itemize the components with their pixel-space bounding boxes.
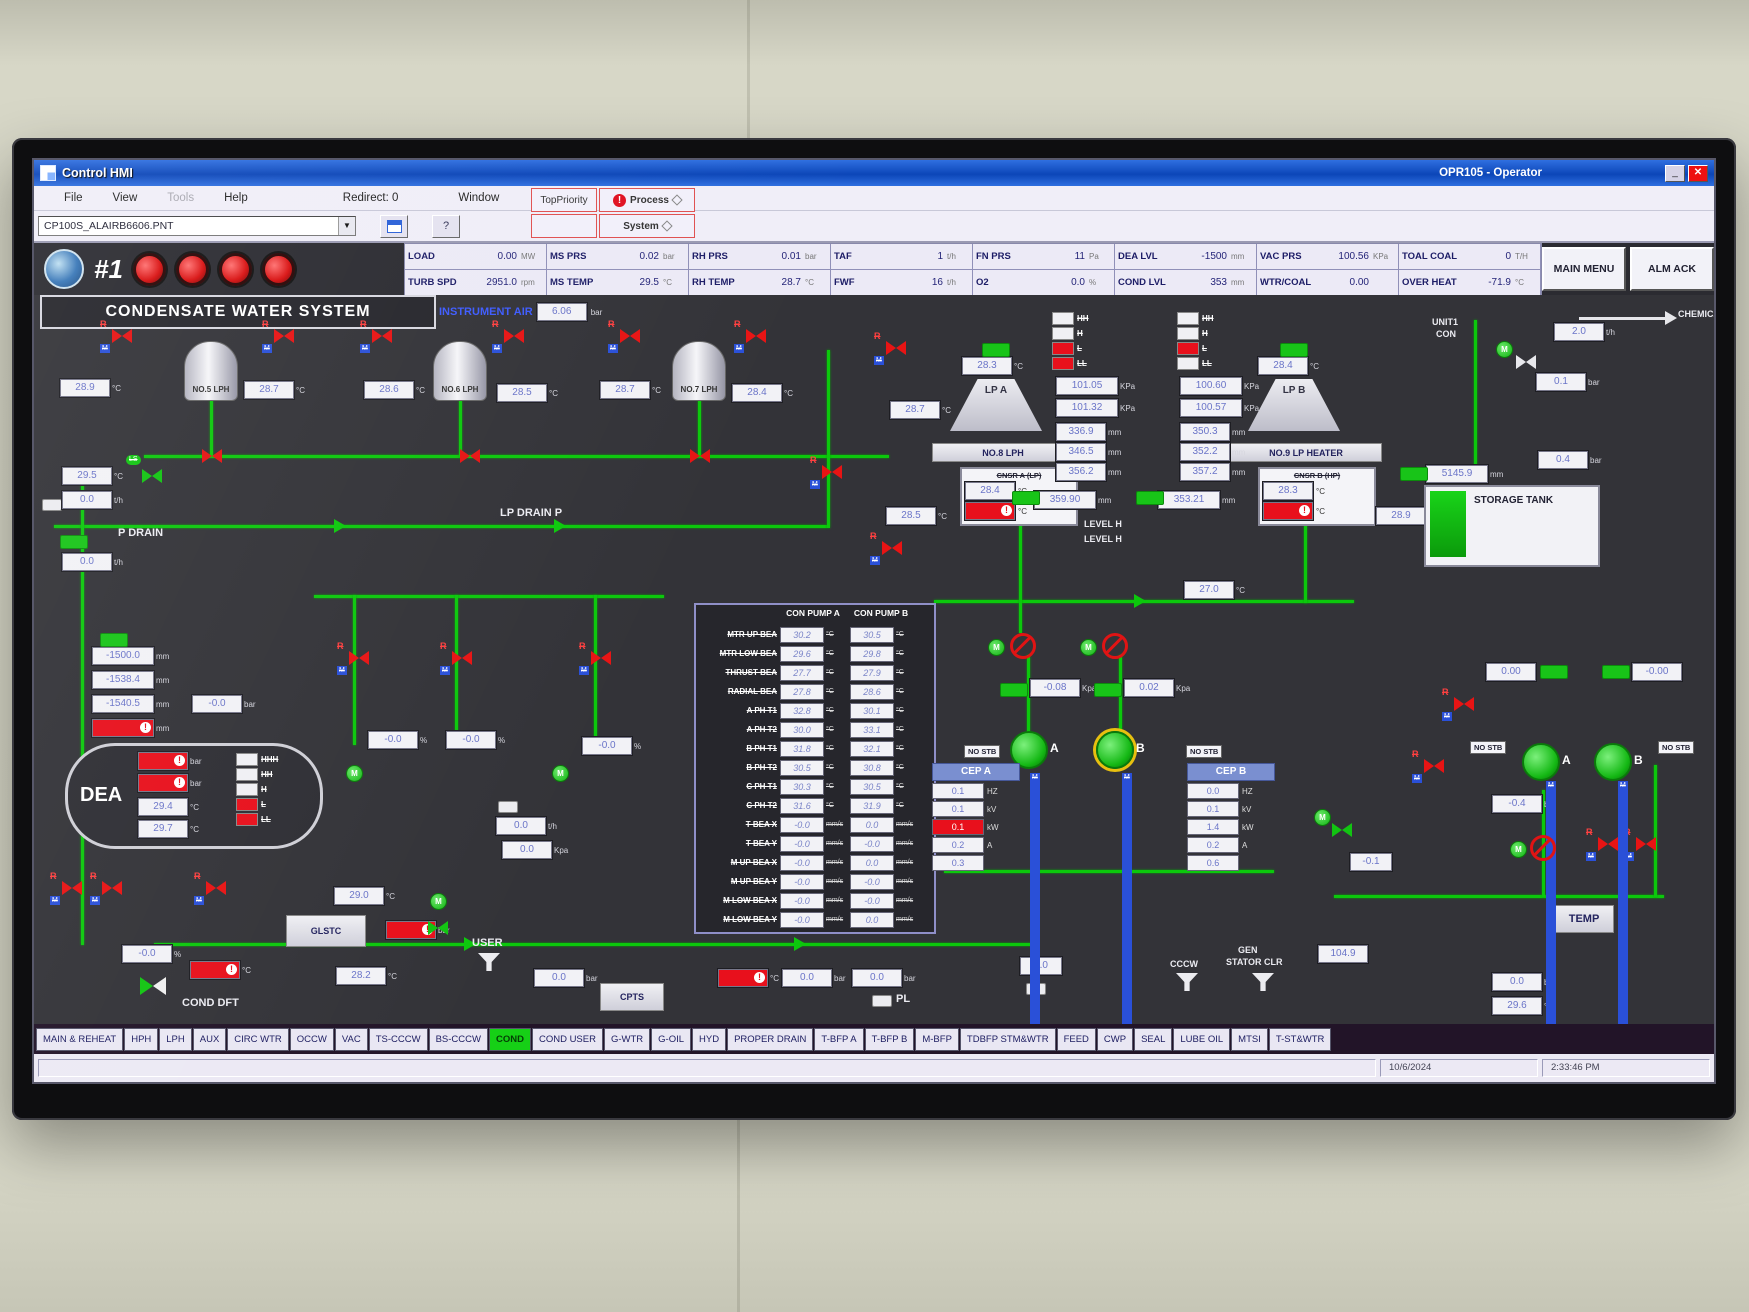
value-box: 336.9mm	[1056, 423, 1121, 441]
screen-tab[interactable]: T-BFP B	[865, 1028, 915, 1051]
cep-b-title[interactable]: CEP B	[1187, 763, 1275, 781]
kpi-cell: TURB SPD2951.0rpm	[405, 270, 547, 296]
level-box-icon	[1177, 342, 1199, 355]
table-row: RADIAL BEA 27.8°C 28.6°C	[699, 682, 931, 701]
valve-red[interactable]	[262, 323, 294, 349]
value-box: 0.00	[1486, 663, 1536, 681]
unit-block: #1	[34, 243, 404, 295]
motor-icon[interactable]	[1510, 841, 1527, 858]
motor-icon[interactable]	[552, 765, 569, 782]
con-label: CON	[1436, 329, 1456, 339]
table-row: T BEA Y -0.0mm/s -0.0mm/s	[699, 834, 931, 853]
motor-icon[interactable]	[1314, 809, 1331, 826]
cep-row: 0.1HZ	[932, 783, 1020, 799]
valve-red[interactable]	[337, 645, 369, 671]
valve-icon[interactable]	[690, 449, 710, 463]
screen-tab[interactable]: MAIN & REHEAT	[36, 1028, 123, 1051]
valve-red[interactable]	[1442, 691, 1474, 717]
screen-tab[interactable]: BS-CCCW	[429, 1028, 488, 1051]
motor-tag-icon	[1618, 781, 1628, 1024]
value-box: -0.00	[1632, 663, 1682, 681]
operator-label: OPR105 - Operator	[1439, 167, 1542, 179]
storage-tank: STORAGE TANK	[1424, 485, 1600, 567]
value-box: 100.60KPa	[1180, 377, 1259, 395]
screen-tab[interactable]: MTSI	[1231, 1028, 1268, 1051]
lp-turbine-b: LP B	[1248, 379, 1340, 431]
diamond-icon	[661, 220, 672, 231]
value-box: 28.3°C	[962, 357, 1023, 375]
minimize-button[interactable]: _	[1665, 165, 1685, 182]
top-priority-button[interactable]: TopPriority	[531, 188, 597, 212]
value-box: -1538.4mm	[92, 671, 169, 689]
lph-heater-7[interactable]: NO.7 LPH	[672, 341, 726, 401]
table-row: B PH T1 31.8°C 32.1°C	[699, 739, 931, 758]
cnsr-b-panel: CNSR B (HP) 28.3°C °C	[1258, 467, 1376, 526]
lp-drain-label: LP DRAIN P	[500, 507, 562, 519]
kpi-cell: WTR/COAL0.00	[1257, 270, 1399, 296]
value-box: 2.0t/h	[1554, 323, 1615, 341]
level-box-icon	[1177, 357, 1199, 370]
glstc-plate[interactable]: GLSTC	[286, 915, 366, 947]
value-box: 28.7°C	[890, 401, 951, 419]
motor-icon[interactable]	[346, 765, 363, 782]
valve-green-white-icon[interactable]	[140, 977, 166, 995]
meter-icon	[42, 499, 62, 511]
kpi-cell: MS PRS0.02bar	[547, 244, 689, 270]
value-box: 0.0t/h	[62, 491, 123, 509]
valve-red[interactable]	[50, 875, 82, 901]
screen-tab[interactable]: CWP	[1097, 1028, 1133, 1051]
auto-tag-icon	[1094, 683, 1122, 697]
screen-tab[interactable]: COND	[489, 1028, 531, 1051]
pipe-segment	[1304, 523, 1307, 603]
menu-item[interactable]: File	[64, 192, 83, 204]
system-button[interactable]: System	[599, 214, 695, 238]
value-box: -0.0bar	[192, 695, 256, 713]
valve-red[interactable]	[100, 323, 132, 349]
pipe-segment	[459, 395, 462, 457]
level-box-icon	[236, 753, 258, 766]
valve-red[interactable]	[608, 323, 640, 349]
alarm-lamp[interactable]	[262, 253, 295, 286]
file-combobox[interactable]: CP100S_ALAIRB6606.PNT	[38, 216, 356, 236]
deaerator-vessel[interactable]: DEA bar bar 29.4°C 29.7°C HHHHHHLLL	[65, 743, 323, 849]
value-box: 28.6°C	[364, 381, 425, 399]
header-buttons: MAIN MENU ALM ACK	[1542, 243, 1714, 295]
motor-icon[interactable]	[1080, 639, 1097, 656]
no9-lph-plate: NO.9 LP HEATER	[1230, 443, 1382, 462]
value-box: 104.9	[1318, 945, 1368, 963]
motor-tag-icon	[1122, 773, 1132, 1024]
value-box: 350.3mm	[1180, 423, 1245, 441]
auto-tag-icon	[1280, 343, 1308, 357]
kpi-cell: MS TEMP29.5°C	[547, 270, 689, 296]
process-label: Process	[630, 195, 669, 206]
main-menu-button[interactable]: MAIN MENU	[1542, 247, 1626, 291]
cep-row: 0.0HZ	[1187, 783, 1275, 799]
valve-green-icon[interactable]	[1332, 823, 1352, 837]
no-stb-tag: NO STB	[964, 745, 1000, 758]
auto-tag-icon	[1400, 467, 1428, 481]
pipe-segment	[827, 350, 830, 528]
value-box: 0.0	[1020, 957, 1062, 975]
mimic-diagram: CONDENSATE WATER SYSTEM INSTRUMENT AIR 6…	[34, 295, 1714, 1024]
valve-red[interactable]	[194, 875, 226, 901]
motor-tag-icon	[100, 344, 110, 353]
table-header-b: CON PUMP B	[847, 608, 915, 625]
auto-tag-icon	[1136, 491, 1164, 505]
value-box: 0.02Kpa	[1124, 679, 1190, 697]
value-box: 29.7°C	[138, 820, 199, 838]
auto-tag-icon	[1602, 665, 1630, 679]
pump-b-label: B	[1634, 753, 1643, 767]
dea-level-gauge: HHHHHHLLL	[236, 752, 278, 827]
screen: Control HMI OPR105 - Operator _ ✕ FileVi…	[32, 158, 1716, 1084]
value-box: 100.57KPa	[1180, 399, 1259, 417]
value-box: 352.2mm	[1180, 443, 1245, 461]
screen-tab[interactable]: OCCW	[290, 1028, 334, 1051]
table-row: C PH T1 30.3°C 30.5°C	[699, 777, 931, 796]
kpi-cell: OVER HEAT-71.9°C	[1399, 270, 1541, 296]
limit-switch-tag-icon	[126, 455, 141, 465]
cep-row: 0.2A	[1187, 837, 1275, 853]
dropdown-arrow-icon[interactable]	[338, 217, 355, 235]
kpi-cell: DEA LVL-1500mm	[1115, 244, 1257, 270]
table-row: T BEA X -0.0mm/s 0.0mm/s	[699, 815, 931, 834]
value-box: 101.32KPa	[1056, 399, 1135, 417]
screen-tab[interactable]: HPH	[124, 1028, 158, 1051]
motor-icon[interactable]	[988, 639, 1005, 656]
flow-arrow-icon	[1134, 594, 1146, 608]
window-icon	[387, 220, 402, 233]
flow-arrow-icon	[794, 937, 806, 951]
dea-label: DEA	[80, 784, 122, 807]
process-button[interactable]: Process	[599, 188, 695, 212]
cond-dft-label: COND DFT	[182, 997, 239, 1009]
value-box: 28.9°C	[60, 379, 121, 397]
transfer-pump-a[interactable]	[1522, 743, 1560, 781]
kpi-cell: TAF1t/h	[831, 244, 973, 270]
motor-tag-icon	[1030, 773, 1040, 1024]
screen-tab[interactable]: TS-CCCW	[369, 1028, 428, 1051]
screen-tab[interactable]: TDBFP STM&WTR	[960, 1028, 1056, 1051]
valve-green-icon[interactable]	[142, 469, 162, 483]
auto-tag-icon	[1012, 491, 1040, 505]
table-row: M LOW BEA Y -0.0mm/s 0.0mm/s	[699, 910, 931, 929]
level-box-icon	[1177, 327, 1199, 340]
alarm-box: mm	[92, 719, 169, 737]
flow-arrow-icon	[554, 519, 566, 533]
value-box: -0.0%	[446, 731, 505, 749]
value-box: 0.0bar	[782, 969, 846, 987]
table-header-a: CON PUMP A	[779, 608, 847, 625]
table-row: M LOW BEA X -0.0mm/s -0.0mm/s	[699, 891, 931, 910]
value-box: 28.5°C	[497, 384, 558, 402]
cep-row: 0.1kV	[932, 801, 1020, 817]
value-box: 0.0Kpa	[502, 841, 568, 859]
value-box: -1500.0mm	[92, 647, 169, 665]
value-box: 0.0bar	[852, 969, 916, 987]
table-row: M UP BEA Y -0.0mm/s -0.0mm/s	[699, 872, 931, 891]
valve-icon[interactable]	[460, 449, 480, 463]
toolbar: CP100S_ALAIRB6606.PNT ?	[34, 211, 1714, 243]
no-run-icon	[1010, 633, 1036, 659]
close-button[interactable]: ✕	[1688, 165, 1708, 182]
no-stb-tag: NO STB	[1470, 741, 1506, 754]
valve-red[interactable]	[1586, 831, 1618, 857]
table-row: THRUST BEA 27.7°C 27.9°C	[699, 663, 931, 682]
kpi-strip: #1 LOAD0.00MW MS PRS0.02bar RH PRS0.01ba…	[34, 243, 1714, 295]
flow-arrow-icon	[1665, 311, 1677, 325]
value-box: 346.5mm	[1056, 443, 1121, 461]
wall-seam	[747, 0, 750, 140]
valve-red[interactable]	[874, 335, 906, 361]
valve-red[interactable]	[360, 323, 392, 349]
value-box: 29.0°C	[334, 887, 395, 905]
menubar: FileViewToolsHelp Redirect: 0 Window	[34, 186, 1714, 211]
level-box-icon	[1052, 327, 1074, 340]
value-box: 359.90mm	[1034, 491, 1111, 509]
value-box: 0.1bar	[1536, 373, 1600, 391]
value-box: 0.0t/h	[496, 817, 557, 835]
value-box: 29.5°C	[62, 467, 123, 485]
meter-icon	[872, 995, 892, 1007]
funnel-icon	[478, 953, 500, 971]
gen-label: GEN	[1238, 945, 1258, 955]
help-button[interactable]: ?	[432, 215, 460, 238]
menu-item[interactable]: Help	[224, 192, 248, 204]
screen-tab[interactable]: T-BFP A	[814, 1028, 863, 1051]
value-box: 357.2mm	[1180, 463, 1245, 481]
level-box-icon	[1052, 357, 1074, 370]
status-blank	[38, 1059, 1376, 1077]
table-row: MTR UP BEA 30.2°C 30.5°C	[699, 625, 931, 644]
value-box: 356.2mm	[1056, 463, 1121, 481]
value-box: -0.1	[1350, 853, 1392, 871]
system-label: System	[623, 221, 659, 232]
valve-red[interactable]	[579, 645, 611, 671]
priority-blank	[531, 214, 597, 238]
value-box: -1540.5mm	[92, 695, 169, 713]
no-run-icon	[1530, 835, 1556, 861]
kpi-cell: FN PRS11Pa	[973, 244, 1115, 270]
menu-item[interactable]: View	[113, 192, 138, 204]
alm-ack-button[interactable]: ALM ACK	[1630, 247, 1714, 291]
value-box: 28.4°C	[1258, 357, 1319, 375]
screen-tab[interactable]: G-WTR	[604, 1028, 650, 1051]
pipe-segment	[144, 455, 889, 458]
kpi-cell: COND LVL353mm	[1115, 270, 1257, 296]
valve-green-icon[interactable]	[428, 921, 448, 935]
funnel-icon	[1176, 973, 1198, 991]
file-name: CP100S_ALAIRB6606.PNT	[44, 220, 174, 232]
table-row: B PH T2 30.5°C 30.8°C	[699, 758, 931, 777]
screen-tab[interactable]: M-BFP	[915, 1028, 959, 1051]
screen-tab[interactable]: HYD	[692, 1028, 726, 1051]
cep-row: 0.1kW	[932, 819, 1020, 835]
screen-tab[interactable]: FEED	[1057, 1028, 1096, 1051]
valve-red[interactable]	[810, 459, 842, 485]
valve-red[interactable]	[440, 645, 472, 671]
kpi-cell: RH PRS0.01bar	[689, 244, 831, 270]
screen-tab[interactable]: COND USER	[532, 1028, 603, 1051]
value-box: -0.0%	[122, 945, 181, 963]
cep-b-panel: CEP B 0.0HZ0.1kV1.4kW0.2A0.6	[1187, 763, 1275, 871]
alarm-box: bar	[138, 774, 202, 792]
value-box: 27.0°C	[1184, 581, 1245, 599]
flow-arrow-icon	[334, 519, 346, 533]
alarm-lamp[interactable]	[133, 253, 166, 286]
value-box: 28.5°C	[886, 507, 947, 525]
auto-tag-icon	[982, 343, 1010, 357]
valve-icon	[112, 329, 132, 343]
lph-heater-6[interactable]: NO.6 LPH	[433, 341, 487, 401]
table-row: MTR LOW BEA 29.6°C 29.8°C	[699, 644, 931, 663]
stator-clr-label: STATOR CLR	[1226, 957, 1283, 967]
monitor-bezel: Control HMI OPR105 - Operator _ ✕ FileVi…	[12, 138, 1736, 1120]
level-box-icon	[1177, 312, 1199, 325]
kpi-cell: VAC PRS100.56KPa	[1257, 244, 1399, 270]
transfer-pump-b[interactable]	[1594, 743, 1632, 781]
table-row: M UP BEA X -0.0mm/s 0.0mm/s	[699, 853, 931, 872]
pump-a-label: A	[1050, 741, 1059, 755]
window-tool-button[interactable]	[380, 215, 408, 238]
value-box: 101.05KPa	[1056, 377, 1135, 395]
cep-a-panel: CEP A 0.1HZ0.1kV0.1kW0.2A0.3	[932, 763, 1020, 871]
unit1-label: UNIT1	[1432, 317, 1458, 327]
level-box-icon	[236, 768, 258, 781]
pump-b-label: B	[1136, 741, 1145, 755]
meter-icon	[498, 801, 518, 813]
temp-button[interactable]: TEMP	[1554, 905, 1614, 933]
motor-tag-icon	[1546, 781, 1556, 1024]
alarm-lamp[interactable]	[219, 253, 252, 286]
menu-item[interactable]: Tools	[167, 192, 194, 204]
screen-tab[interactable]: G-OIL	[651, 1028, 691, 1051]
level-box-icon	[236, 783, 258, 796]
valve-red[interactable]	[870, 535, 902, 561]
no-stb-tag: NO STB	[1658, 741, 1694, 754]
level-h-label: LEVEL H	[1084, 519, 1122, 529]
value-box: 29.6°C	[1492, 997, 1553, 1015]
valve-red[interactable]	[734, 323, 766, 349]
valve-icon[interactable]	[202, 449, 222, 463]
kpi-cell: FWF16t/h	[831, 270, 973, 296]
pipe-segment	[314, 595, 664, 598]
pipe-segment	[210, 395, 213, 457]
value-box: 28.7°C	[244, 381, 305, 399]
pipe-segment	[1474, 320, 1477, 482]
valve-red[interactable]	[1412, 753, 1444, 779]
auto-tag-icon	[60, 535, 88, 549]
pipe-segment	[698, 395, 701, 457]
diamond-icon	[671, 194, 682, 205]
instrument-air: INSTRUMENT AIR 6.06bar	[439, 303, 602, 321]
pipe-segment	[1334, 895, 1664, 898]
lph-heater-5[interactable]: NO.5 LPH	[184, 341, 238, 401]
kpi-cell: O20.0%	[973, 270, 1115, 296]
valve-white-icon[interactable]	[1516, 355, 1536, 369]
motor-icon[interactable]	[1496, 341, 1513, 358]
value-box: -0.08Kpa	[1030, 679, 1096, 697]
screen-tab[interactable]: SEAL	[1134, 1028, 1172, 1051]
alarm-box: bar	[138, 752, 202, 770]
cep-row: 0.6	[1187, 855, 1275, 871]
tank-level-fill	[1430, 491, 1466, 557]
auto-tag-icon	[100, 633, 128, 647]
value-box: 28.2°C	[336, 967, 397, 985]
app-icon	[40, 165, 56, 181]
remote-tag-icon	[100, 319, 107, 329]
cpts-plate[interactable]: CPTS	[600, 983, 664, 1011]
redirect-label: Redirect: 0	[343, 192, 399, 204]
value-box: 28.7°C	[600, 381, 661, 399]
alarm-lamp[interactable]	[176, 253, 209, 286]
cep-row: 1.4kW	[1187, 819, 1275, 835]
valve-red[interactable]	[492, 323, 524, 349]
status-time: 2:33:46 PM	[1542, 1059, 1710, 1077]
level-box-icon	[1052, 312, 1074, 325]
menu-window[interactable]: Window	[458, 192, 499, 204]
level-box-icon	[1052, 342, 1074, 355]
value-box: -0.0%	[368, 731, 427, 749]
status-date: 10/6/2024	[1380, 1059, 1538, 1077]
titlebar: Control HMI OPR105 - Operator _ ✕	[34, 160, 1714, 186]
no-stb-tag: NO STB	[1186, 745, 1222, 758]
motor-icon[interactable]	[430, 893, 447, 910]
level-h-label: LEVEL H	[1084, 534, 1122, 544]
auto-tag-icon	[1000, 683, 1028, 697]
pipe-segment	[1019, 523, 1022, 633]
screen-tab[interactable]: PROPER DRAIN	[727, 1028, 813, 1051]
alarm-box: °C	[190, 961, 251, 979]
wall-seam	[737, 1118, 740, 1312]
unit-number: #1	[94, 254, 123, 285]
alarm-box: °C	[718, 969, 779, 987]
table-row: C PH T2 31.6°C 31.9°C	[699, 796, 931, 815]
screen-tab[interactable]: CIRC WTR	[227, 1028, 289, 1051]
screen-tab[interactable]: T-ST&WTR	[1269, 1028, 1332, 1051]
cep-row: 0.3	[932, 855, 1020, 871]
screen-tab[interactable]: LPH	[159, 1028, 191, 1051]
value-box: 5145.9mm	[1426, 465, 1503, 483]
cep-pump-b[interactable]	[1096, 731, 1134, 769]
user-label: USER	[472, 937, 503, 949]
kpi-cell: TOAL COAL0T/H	[1399, 244, 1541, 270]
pump-a-label: A	[1562, 753, 1571, 767]
kpi-cell: LOAD0.00MW	[405, 244, 547, 270]
level-box-icon	[236, 813, 258, 826]
valve-red[interactable]	[90, 875, 122, 901]
value-box: 28.4°C	[732, 384, 793, 402]
level-gauge-b: HHHLLL	[1177, 311, 1214, 371]
screen-tab[interactable]: AUX	[193, 1028, 227, 1051]
screen-tab[interactable]: LUBE OIL	[1173, 1028, 1230, 1051]
window-title: Control HMI	[62, 166, 133, 180]
value-box: 29.4°C	[138, 798, 199, 816]
screen-tab[interactable]: VAC	[335, 1028, 368, 1051]
valve-red[interactable]	[1624, 831, 1656, 857]
cccw-label: CCCW	[1170, 959, 1198, 969]
no-run-icon	[1102, 633, 1128, 659]
cep-row: 0.1kV	[1187, 801, 1275, 817]
cep-a-title[interactable]: CEP A	[932, 763, 1020, 781]
kpi-cell: RH TEMP28.7°C	[689, 270, 831, 296]
pl-label: PL	[896, 993, 910, 1005]
auto-tag-icon	[1540, 665, 1568, 679]
cep-row: 0.2A	[932, 837, 1020, 853]
value-box: 0.4bar	[1538, 451, 1602, 469]
